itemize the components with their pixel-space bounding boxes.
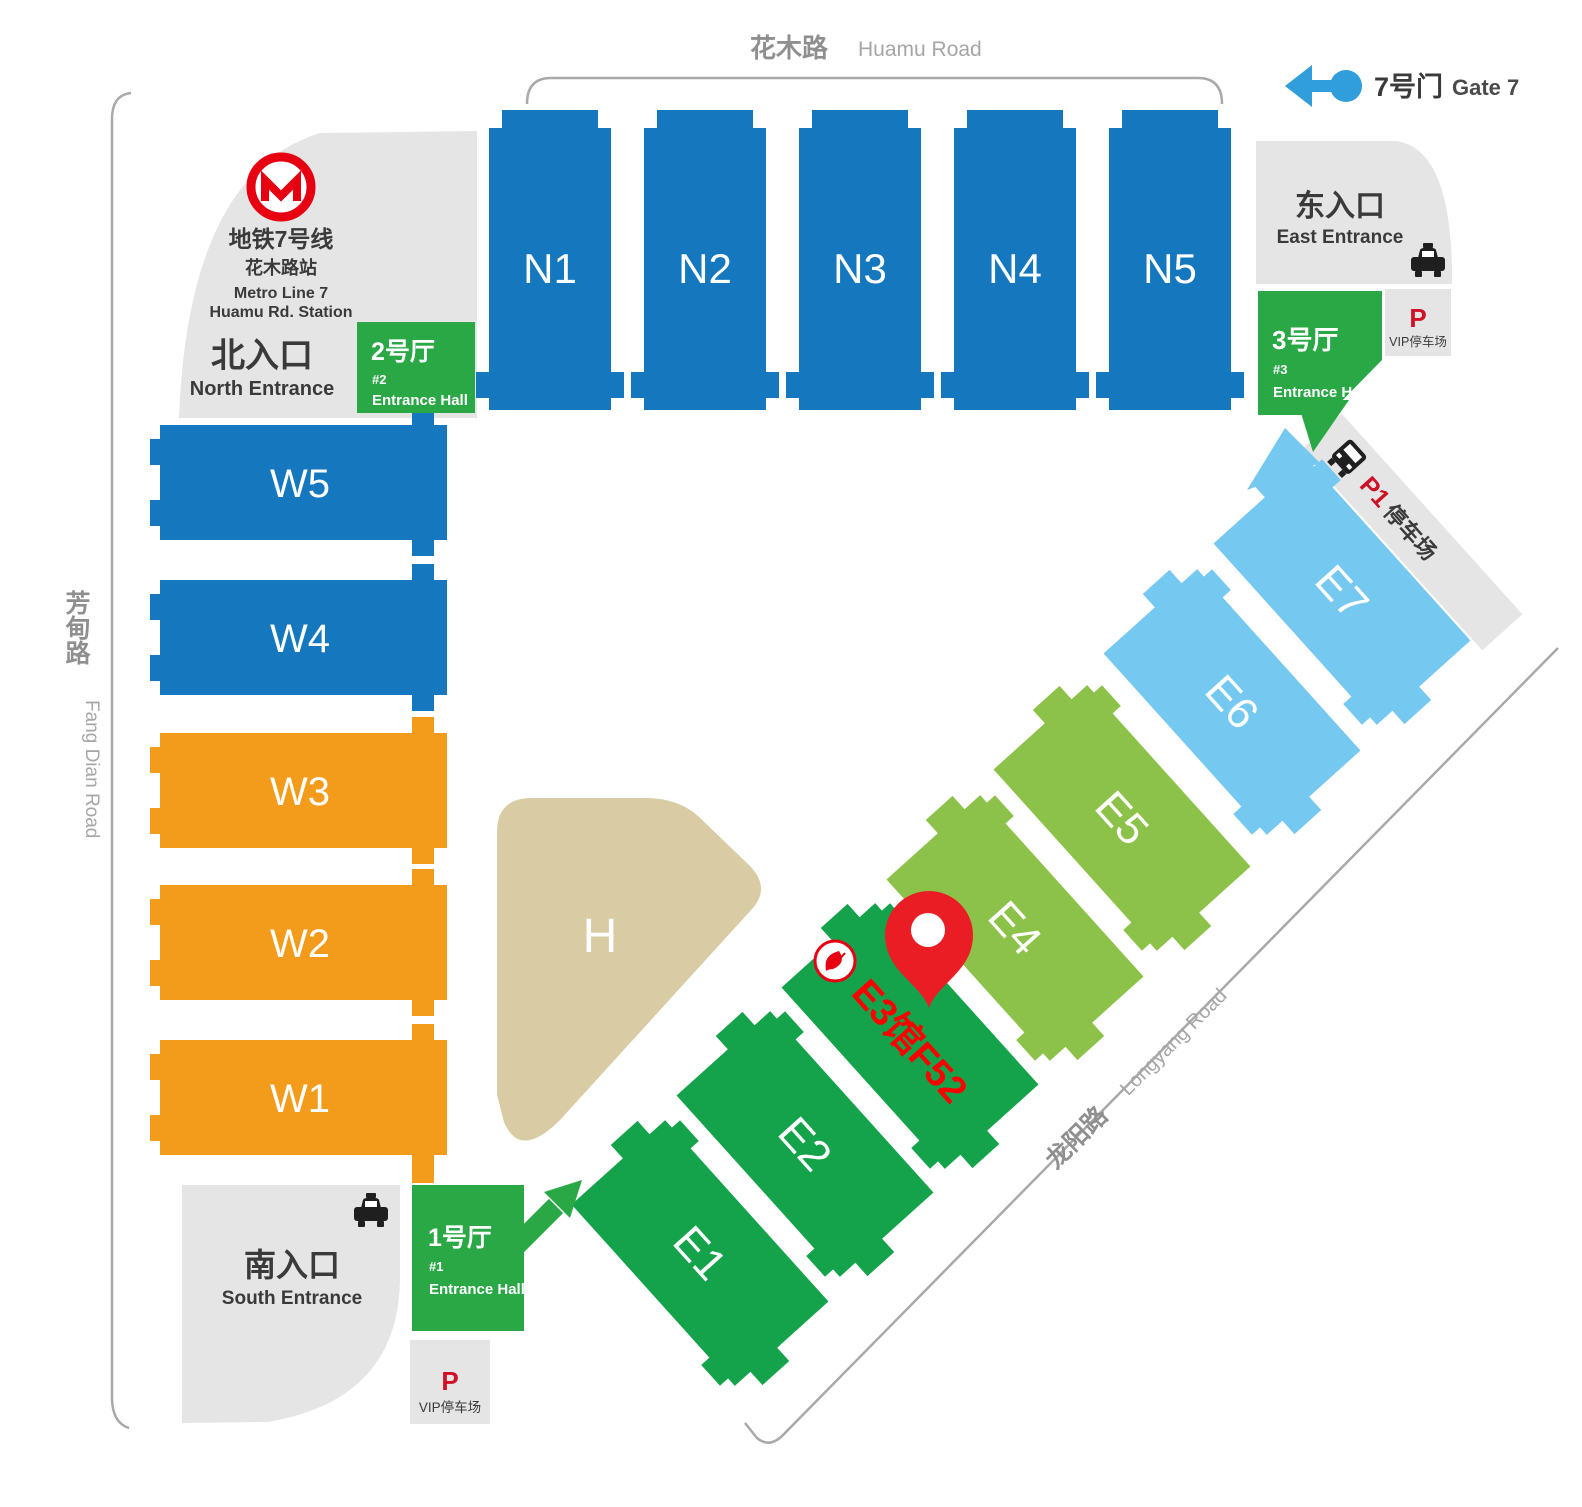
gate7-legend: 7号门 Gate 7 — [1285, 65, 1519, 107]
east-vip-parking: P VIP停车场 — [1385, 289, 1451, 356]
hall-W5: W5 — [150, 425, 447, 556]
hall1-box — [412, 1185, 524, 1331]
hall2-label-cn: 2号厅 — [371, 338, 435, 366]
north-entrance-label-en: North Entrance — [190, 378, 334, 400]
gate7-label-cn: 7号门 — [1374, 72, 1443, 102]
entrance-hall-1: 1号厅 #1 Entrance Hall — [412, 1180, 582, 1331]
hall-N5: N5 — [1096, 110, 1244, 410]
hall2-num: #2 — [372, 372, 386, 387]
east-entrance-label-en: East Entrance — [1277, 227, 1404, 248]
hall-N1: N1 — [476, 110, 624, 410]
fangdian-road-label-cn: 芳甸路 — [62, 590, 92, 665]
hall-N2: N2 — [631, 110, 779, 410]
exhibitor-logo-icon — [815, 941, 855, 981]
hall-H-label: H — [583, 910, 618, 963]
east-vip-label: VIP停车场 — [1389, 334, 1447, 349]
gate7-arrow-icon — [1285, 65, 1362, 107]
hall-W4-label: W4 — [270, 617, 330, 661]
fangdian-road-label-en: Fang Dian Road — [81, 700, 102, 838]
hall-W2: W2 — [150, 869, 447, 1016]
south-vip-label: VIP停车场 — [419, 1399, 481, 1415]
hall-N2-label: N2 — [678, 245, 732, 292]
hall-N3-label: N3 — [833, 245, 887, 292]
hall-N3: N3 — [786, 110, 934, 410]
huamu-road-label-cn: 花木路 — [750, 33, 829, 63]
hall2-label-en: Entrance Hall — [372, 392, 468, 409]
hall3-num: #3 — [1273, 362, 1287, 377]
hall-W3-label: W3 — [270, 770, 330, 814]
hall-N5-label: N5 — [1143, 245, 1197, 292]
south-vip-parking: P VIP停车场 — [410, 1340, 490, 1424]
entrance-hall-2: 2号厅 #2 Entrance Hall — [357, 322, 475, 413]
hall3-label-en: Entrance Hall — [1273, 384, 1369, 401]
hall-N4-label: N4 — [988, 245, 1042, 292]
south-entrance-label-cn: 南入口 — [244, 1247, 340, 1283]
hall-N4: N4 — [941, 110, 1089, 410]
metro-logo-icon — [251, 157, 311, 217]
hall-W2-label: W2 — [270, 922, 330, 966]
gate7-label-en: Gate 7 — [1452, 75, 1519, 100]
hall-W1: W1 — [150, 1024, 447, 1183]
huamu-road-line — [527, 78, 1222, 104]
hall3-label-cn: 3号厅 — [1272, 325, 1338, 355]
metro-line-cn: 地铁7号线 — [229, 226, 334, 252]
hall1-num: #1 — [429, 1259, 443, 1274]
south-entrance-label-en: South Entrance — [222, 1288, 362, 1309]
hall-W5-label: W5 — [270, 462, 330, 506]
longyang-road-label-cn: 龙阳路 — [1040, 1101, 1114, 1175]
hall-W1-label: W1 — [270, 1077, 330, 1121]
hall-W3: W3 — [150, 717, 447, 864]
metro-station-cn: 花木路站 — [245, 257, 317, 278]
south-entrance-area: 南入口 South Entrance — [182, 1185, 400, 1423]
longyang-road-label-en: Longyang Road — [1116, 985, 1231, 1100]
north-halls: N1 N2 N3 N4 N5 — [476, 110, 1244, 410]
metro-station-en: Huamu Rd. Station — [209, 304, 352, 321]
hall1-label-cn: 1号厅 — [428, 1224, 492, 1252]
fangdian-road-line — [112, 93, 131, 1428]
west-halls: W5 W4 W3 W2 — [150, 413, 447, 1183]
hall-N1-label: N1 — [523, 245, 577, 292]
east-entrance-label-cn: 东入口 — [1295, 189, 1385, 223]
metro-line-en: Metro Line 7 — [234, 285, 328, 302]
hall-W4: W4 — [150, 564, 447, 711]
north-entrance-label-cn: 北入口 — [211, 337, 313, 375]
hall1-label-en: Entrance Hall — [429, 1281, 525, 1298]
east-vip-p: P — [1409, 303, 1426, 333]
map-canvas: 花木路 Huamu Road 芳甸路 Fang Dian Road 龙阳路 Lo… — [0, 0, 1582, 1507]
huamu-road-label-en: Huamu Road — [858, 38, 982, 61]
south-vip-p: P — [441, 1366, 458, 1396]
sniec-venue-map: 花木路 Huamu Road 芳甸路 Fang Dian Road 龙阳路 Lo… — [0, 0, 1582, 1507]
